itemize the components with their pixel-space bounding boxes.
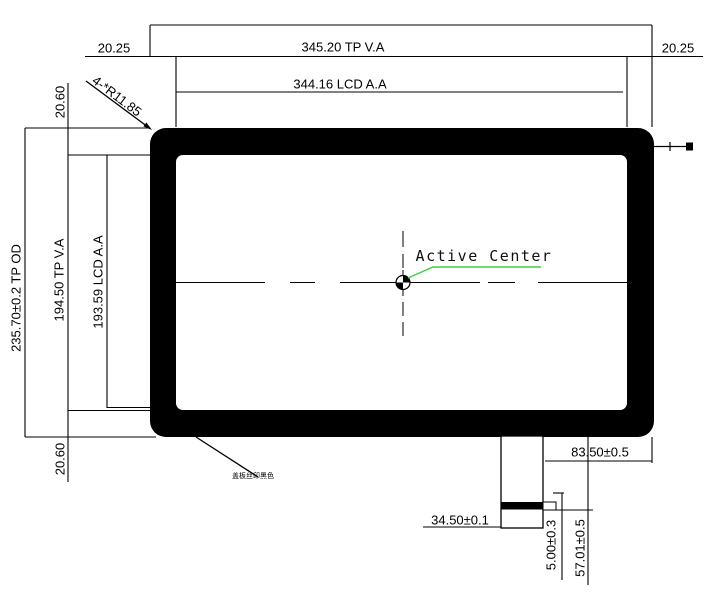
dim-top-margin-right: 20.25 xyxy=(662,42,695,55)
dim-tp-va-width: 345.20 TP V.A xyxy=(302,41,385,54)
panel-outline-drawing: 20.25 345.20 TP V.A 20.25 344.16 LCD A.A… xyxy=(0,0,711,600)
dim-top-margin-left: 20.25 xyxy=(98,42,131,55)
dim-fpc-width: 34.50±0.1 xyxy=(431,514,489,527)
fpc-tail xyxy=(501,436,543,528)
dim-lcd-aa-height: 193.59 LCD A.A xyxy=(92,235,105,328)
corner-radius-arrowhead xyxy=(143,123,152,131)
dim-fpc-length: 57.01±0.5 xyxy=(574,519,587,577)
edge-connector-symbol xyxy=(654,142,693,151)
active-center-label: Active Center xyxy=(416,247,553,265)
dim-side-margin-top: 20.60 xyxy=(54,86,67,119)
cover-note-leader xyxy=(196,437,258,477)
dim-tp-va-height: 194.50 TP V.A xyxy=(53,239,66,322)
dim-fpc-stiffener-thickness: 5.00±0.3 xyxy=(545,520,558,571)
fpc-stiffener-bar xyxy=(501,502,543,510)
dim-lcd-aa-width: 344.16 LCD A.A xyxy=(293,78,386,91)
fpc-connector-tab xyxy=(543,502,556,510)
cover-print-note: 盖板丝印黑色 xyxy=(232,472,274,480)
dim-tp-od-height: 235.70±0.2 TP OD xyxy=(10,244,23,352)
dim-fpc-right-offset: 83.50±0.5 xyxy=(571,446,629,459)
dim-side-margin-bottom: 20.60 xyxy=(54,443,67,476)
